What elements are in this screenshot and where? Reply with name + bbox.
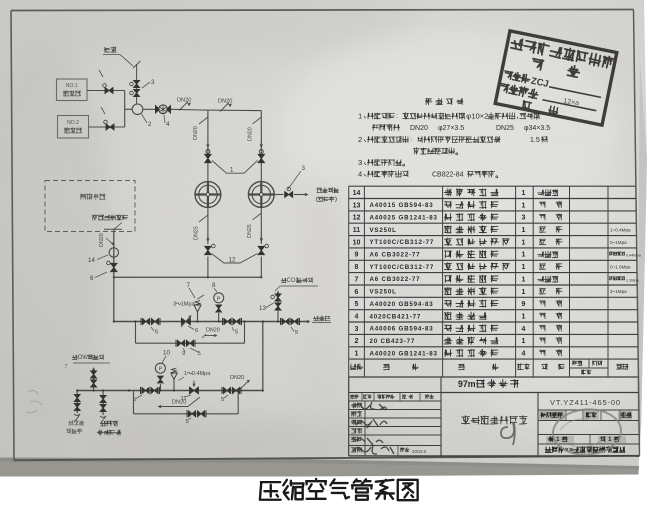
svg-text:VS250L: VS250L	[370, 289, 397, 296]
svg-text:DN20: DN20	[218, 99, 232, 105]
svg-text:A40025 GB1241-83: A40025 GB1241-83	[370, 215, 438, 222]
svg-text:10: 10	[163, 350, 170, 357]
svg-text:4: 4	[355, 314, 359, 321]
svg-text:DN20: DN20	[177, 98, 191, 104]
svg-text:97m: 97m	[458, 379, 476, 389]
svg-text:1: 1	[522, 338, 526, 345]
svg-text:4020CB421-77: 4020CB421-77	[370, 313, 422, 320]
svg-text:OWS: OWS	[78, 355, 92, 361]
svg-text:5: 5	[221, 397, 224, 403]
svg-text:NO.1: NO.1	[66, 83, 78, 89]
svg-text:DN25: DN25	[496, 125, 514, 132]
svg-text:1: 1	[522, 227, 526, 234]
svg-text:2003.8: 2003.8	[412, 449, 426, 454]
svg-text:1: 1	[522, 289, 526, 296]
svg-text:3: 3	[358, 158, 362, 167]
svg-text:10: 10	[353, 239, 361, 246]
svg-text:1~0.4Mpa: 1~0.4Mpa	[610, 227, 631, 232]
svg-text:1: 1	[230, 167, 234, 174]
svg-text:7: 7	[187, 282, 191, 289]
svg-text:14: 14	[353, 190, 361, 197]
svg-text:DN20: DN20	[230, 375, 244, 381]
svg-text:12: 12	[229, 257, 236, 264]
svg-text:1: 1	[522, 190, 526, 197]
svg-text:3: 3	[302, 165, 306, 172]
svg-text:2: 2	[358, 135, 362, 144]
svg-text:3~1Mpa: 3~1Mpa	[610, 289, 627, 294]
svg-text:DN20: DN20	[410, 125, 428, 132]
svg-text:0.4Mpa: 0.4Mpa	[192, 371, 212, 377]
svg-text:DN20: DN20	[206, 328, 220, 334]
svg-text:6: 6	[355, 289, 359, 296]
svg-text:1.5: 1.5	[530, 137, 540, 144]
svg-text:DN20: DN20	[172, 400, 186, 406]
svg-text:A40020 GB1241-83: A40020 GB1241-83	[370, 350, 438, 357]
svg-text:7: 7	[65, 364, 68, 370]
svg-text:A6 CB3022-77: A6 CB3022-77	[370, 276, 421, 283]
svg-text:1: 1	[522, 264, 526, 271]
svg-text:φ27×3.5: φ27×3.5	[438, 125, 464, 132]
svg-text:6: 6	[195, 328, 198, 334]
svg-text:3: 3	[151, 79, 155, 86]
svg-text:NO.2: NO.2	[67, 120, 79, 126]
svg-text:4: 4	[358, 169, 362, 178]
svg-text:4: 4	[166, 121, 170, 128]
svg-text:20 CB423-77: 20 CB423-77	[370, 338, 416, 345]
svg-text:0.44Mpa: 0.44Mpa	[626, 254, 642, 258]
svg-text:1: 1	[522, 252, 526, 259]
svg-text:14: 14	[88, 257, 95, 264]
svg-text:DN25: DN25	[247, 224, 253, 238]
svg-text:4: 4	[522, 326, 526, 333]
svg-text:1: 1	[184, 371, 187, 377]
svg-text:VT.YZ411-465-00: VT.YZ411-465-00	[550, 398, 621, 407]
svg-text:1: 1	[358, 111, 362, 120]
svg-text:0~1.6Mpa: 0~1.6Mpa	[610, 265, 631, 270]
svg-text:CB822-84: CB822-84	[432, 172, 464, 179]
svg-text:3: 3	[355, 326, 359, 333]
svg-text:DN20: DN20	[193, 126, 199, 140]
svg-text:13: 13	[259, 305, 266, 312]
svg-text:DN20: DN20	[248, 127, 254, 141]
svg-text:1: 1	[522, 314, 526, 321]
svg-text:6: 6	[90, 275, 94, 282]
svg-text:2: 2	[148, 121, 152, 128]
svg-text:A40020 GB594-83: A40020 GB594-83	[370, 301, 434, 308]
svg-text:12: 12	[353, 215, 361, 222]
svg-text:5: 5	[355, 301, 359, 308]
svg-text:4: 4	[522, 351, 526, 358]
svg-text:1Mpa: 1Mpa	[181, 301, 196, 307]
svg-text:YT100C/CB312-77: YT100C/CB312-77	[370, 264, 435, 271]
svg-text:A40006 GB594-83: A40006 GB594-83	[370, 326, 434, 333]
svg-text:A40015 GB594-83: A40015 GB594-83	[370, 202, 434, 209]
svg-text:3: 3	[522, 215, 526, 222]
svg-text:13: 13	[353, 202, 361, 209]
svg-text:YT100C/CB312-77: YT100C/CB312-77	[370, 239, 435, 246]
svg-text:11: 11	[353, 227, 361, 234]
svg-text:5: 5	[186, 419, 189, 425]
svg-text:1: 1	[355, 351, 359, 358]
svg-text:9: 9	[355, 252, 359, 259]
svg-text:1: 1	[522, 276, 526, 283]
svg-text:φ34×3.5: φ34×3.5	[524, 125, 550, 132]
svg-text:1: 1	[522, 239, 526, 246]
svg-text:8: 8	[355, 264, 359, 271]
svg-text:DN20: DN20	[99, 233, 105, 247]
svg-text:7: 7	[355, 276, 359, 283]
svg-text:VS250L: VS250L	[370, 227, 397, 234]
svg-text:φ10×2: φ10×2	[466, 111, 488, 120]
svg-text:5: 5	[295, 330, 298, 336]
svg-text:5: 5	[155, 330, 158, 336]
svg-text:1.1Mpa: 1.1Mpa	[626, 278, 640, 282]
svg-text:CO2: CO2	[287, 278, 300, 284]
svg-text:A6 CB3022-77: A6 CB3022-77	[370, 252, 421, 259]
svg-text:1: 1	[522, 202, 526, 209]
svg-text:5: 5	[235, 330, 238, 336]
svg-text:3: 3	[173, 301, 176, 307]
svg-text:8: 8	[212, 282, 216, 289]
svg-text:DN25: DN25	[194, 226, 200, 240]
svg-text:9: 9	[522, 301, 526, 308]
svg-text:2: 2	[355, 338, 359, 345]
svg-text:0~1Mpa: 0~1Mpa	[610, 240, 627, 245]
